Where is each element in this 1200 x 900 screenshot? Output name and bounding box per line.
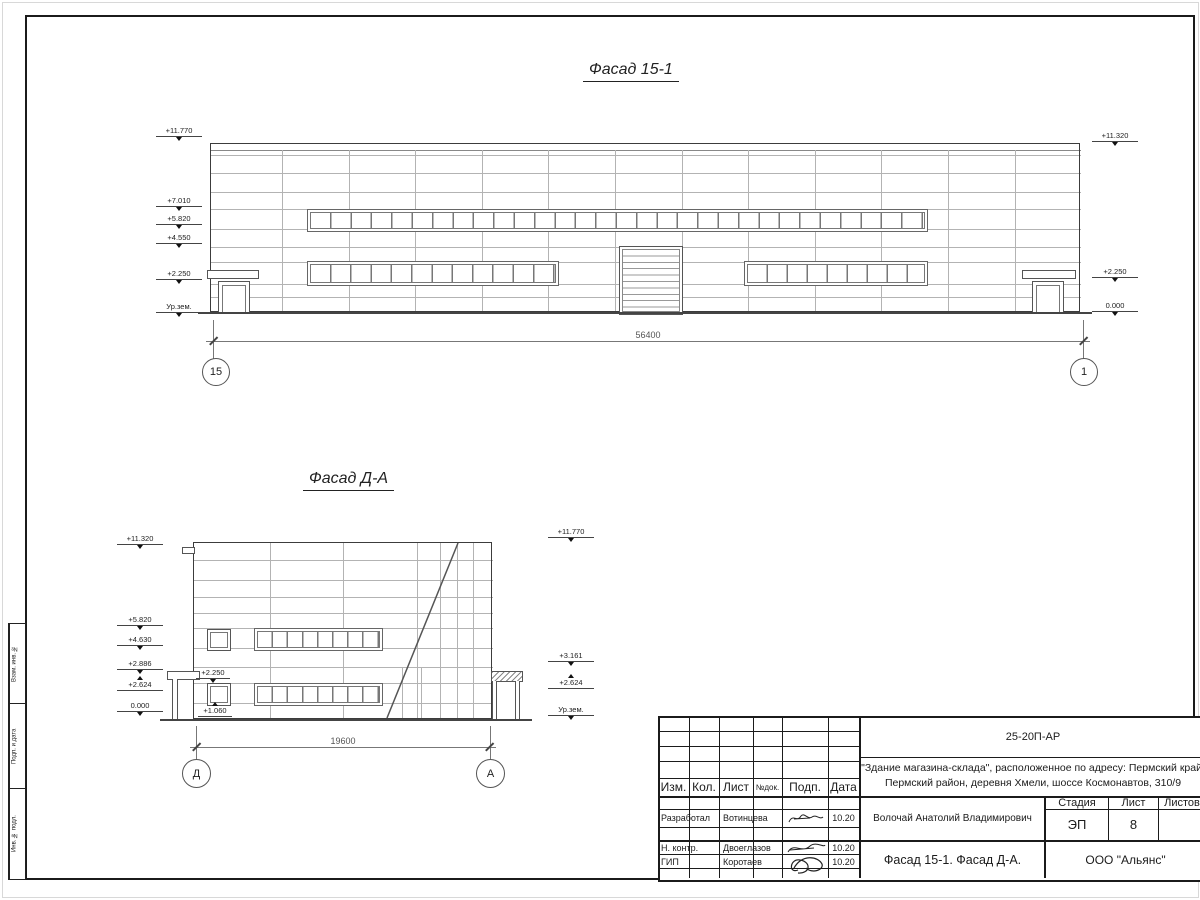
elevation-mark: +2.886 xyxy=(117,660,163,670)
tb-role-nkontr: Н. контр. xyxy=(661,841,719,854)
tb-grid xyxy=(658,746,860,747)
elevation-flag-icon xyxy=(176,137,182,141)
elevation-mark: 0.000 xyxy=(1092,302,1138,312)
elevation-mark: +2.624 xyxy=(548,679,594,689)
door-leaf xyxy=(1036,285,1060,313)
gate-slats xyxy=(622,249,680,312)
elevation-mark: +11.320 xyxy=(1092,132,1138,142)
elevation-flag-icon xyxy=(137,676,143,680)
elevation-flag-icon xyxy=(137,545,143,549)
tb-date: 10.20 xyxy=(828,841,859,854)
elevation-flag-icon xyxy=(212,702,218,706)
tb-col-data: Дата xyxy=(828,778,859,796)
signature-dvoeglazov-korotaev xyxy=(784,840,828,876)
elevation-flag-icon xyxy=(1112,278,1118,282)
tb-col-ndok: №док. xyxy=(753,778,782,796)
tb-grid xyxy=(658,827,860,828)
elevation-flag-icon xyxy=(137,670,143,674)
extension-line xyxy=(196,726,197,759)
elevation-value: +11.320 xyxy=(1102,131,1129,140)
window-frame xyxy=(210,686,228,703)
tb-col-list: Лист xyxy=(719,778,753,796)
tb-grid xyxy=(859,757,1200,758)
elevation-flag-icon xyxy=(176,244,182,248)
tb-sheet-title: Фасад 15-1. Фасад Д-А. xyxy=(861,842,1044,878)
dimension-value-f2: 19600 xyxy=(330,736,355,746)
ribbon-window-f2-upper xyxy=(254,628,383,651)
sectional-gate xyxy=(619,246,683,315)
window-panes xyxy=(310,264,556,283)
tb-grid xyxy=(658,868,860,869)
tb-name-dvoeglazov: Двоеглазов xyxy=(723,841,783,854)
axis-bubble-15: 15 xyxy=(202,358,230,386)
entrance-door-right xyxy=(1032,281,1064,314)
ribbon-window-upper xyxy=(307,209,928,232)
elevation-value: +7.010 xyxy=(167,196,190,205)
elevation-value: +3.161 xyxy=(559,651,582,660)
elevation-value: 0.000 xyxy=(1106,301,1125,310)
small-window-upper xyxy=(207,629,231,651)
ground-line-f1 xyxy=(198,312,1092,314)
elevation-value: +5.820 xyxy=(128,615,151,624)
elevation-flag-icon xyxy=(137,712,143,716)
elevation-value: +11.770 xyxy=(166,126,193,135)
axis-label: 1 xyxy=(1081,366,1087,378)
small-window-lower xyxy=(207,683,231,706)
dimension-value-f1: 56400 xyxy=(635,330,660,340)
ground-line-f2 xyxy=(160,719,532,721)
elevation-mark: +1.060 xyxy=(198,707,232,717)
elevation-value: +4.630 xyxy=(128,635,151,644)
elevation-flag-icon xyxy=(1112,142,1118,146)
elevation-flag-icon xyxy=(176,313,182,317)
tb-sheets-label: Листов xyxy=(1159,796,1200,809)
elevation-value: Ур.зем. xyxy=(558,705,583,714)
elevation-flag-icon xyxy=(568,716,574,720)
tb-stage-label: Стадия xyxy=(1046,796,1108,809)
elevation-mark: +4.550 xyxy=(156,234,202,244)
elevation-flag-icon xyxy=(176,207,182,211)
tb-project-line2: Пермский район, деревня Хмели, шоссе Кос… xyxy=(861,776,1200,791)
tb-project: "Здание магазина-склада", расположенное … xyxy=(861,759,1200,797)
window-frame xyxy=(210,632,228,648)
axis-label: Д xyxy=(193,768,200,780)
ribbon-window-lower-right xyxy=(744,261,928,286)
tb-sheet-label: Лист xyxy=(1109,796,1158,809)
elevation-value: Ур.зем. xyxy=(166,302,191,311)
elevation-mark: +2.250 xyxy=(156,270,202,280)
stamp-box-vzam: Взам. инв. № xyxy=(8,623,26,705)
entrance-canopy-right xyxy=(1022,270,1076,279)
door-leaf xyxy=(222,285,246,313)
tb-sheet-value: 8 xyxy=(1109,810,1158,838)
elevation-value: +2.250 xyxy=(201,668,224,677)
tb-date: 10.20 xyxy=(828,810,859,826)
elevation-flag-icon xyxy=(137,626,143,630)
tb-project-line1: "Здание магазина-склада", расположенное … xyxy=(861,761,1200,776)
stamp-label: Подп. и дата xyxy=(9,704,19,789)
elevation-value: +5.820 xyxy=(167,214,190,223)
elevation-mark: Ур.зем. xyxy=(156,303,202,313)
axis-bubble-a: А xyxy=(476,759,505,788)
elevation-value: 0.000 xyxy=(131,701,150,710)
elevation-mark: +2.250 xyxy=(196,669,230,679)
window-panes xyxy=(257,631,380,648)
window-panes xyxy=(257,686,380,703)
elevation-mark: +7.010 xyxy=(156,197,202,207)
tb-role-razrabotal: Разработал xyxy=(661,810,719,826)
axis-bubble-1: 1 xyxy=(1070,358,1098,386)
elevation-flag-icon xyxy=(210,679,216,683)
axis-label: А xyxy=(487,768,494,780)
dimension-line-f1 xyxy=(206,341,1090,342)
elevation-mark: +5.820 xyxy=(156,215,202,225)
window-panes xyxy=(747,264,925,283)
elevation-mark: +2.250 xyxy=(1092,268,1138,278)
elevation-value: +2.624 xyxy=(128,680,151,689)
stamp-label: Взам. инв. № xyxy=(9,624,19,704)
drawing-sheet: Взам. инв. № Подп. и дата Инв. № подл. Ф… xyxy=(0,0,1200,900)
leanto-post xyxy=(492,681,497,719)
elevation-mark: +4.630 xyxy=(117,636,163,646)
elevation-flag-icon xyxy=(176,280,182,284)
tb-name-votintseva: Вотинцева xyxy=(723,810,781,826)
ribbon-window-lower-left xyxy=(307,261,559,286)
tb-col-podp: Подп. xyxy=(782,778,828,796)
elevation-value: +11.770 xyxy=(558,527,585,536)
elevation-value: +2.886 xyxy=(128,659,151,668)
elevation-flag-icon xyxy=(568,538,574,542)
porch-column xyxy=(172,679,178,719)
elevation-value: +2.624 xyxy=(559,678,582,687)
elevation-value: +2.250 xyxy=(167,269,190,278)
elevation-flag-icon xyxy=(176,225,182,229)
elevation-mark: +11.770 xyxy=(156,127,202,137)
elevation-flag-icon xyxy=(1112,312,1118,316)
signature-votintseva xyxy=(786,811,826,826)
elevation-value: +2.250 xyxy=(1103,267,1126,276)
elevation-mark: Ур.зем. xyxy=(548,706,594,716)
leanto-post xyxy=(515,681,520,719)
elevation-mark: +11.770 xyxy=(548,528,594,538)
elevation-mark: +3.161 xyxy=(548,652,594,662)
entrance-door-left xyxy=(218,281,250,314)
stamp-box-inv: Инв. № подл. xyxy=(8,788,26,880)
axis-label: 15 xyxy=(210,366,222,378)
dimension-line-f2 xyxy=(190,747,496,748)
tb-grid xyxy=(658,761,860,762)
elevation-value: +1.060 xyxy=(203,706,226,715)
elevation-mark: 0.000 xyxy=(117,702,163,712)
elevation-value: +4.550 xyxy=(167,233,190,242)
axis-bubble-d: Д xyxy=(182,759,211,788)
elevation-mark: +2.624 xyxy=(117,681,163,691)
tb-date: 10.20 xyxy=(828,855,859,868)
elevation-flag-icon xyxy=(137,646,143,650)
tb-name-korotaev: Коротаев xyxy=(723,855,781,868)
tb-stage-value: ЭП xyxy=(1046,810,1108,838)
roof-flag xyxy=(182,547,195,554)
tb-col-izm: Изм. xyxy=(658,778,689,796)
elevation-flag-icon xyxy=(568,674,574,678)
stamp-box-podp: Подп. и дата xyxy=(8,703,26,790)
tb-role-gip: ГИП xyxy=(661,855,719,868)
stamp-label: Инв. № подл. xyxy=(9,789,19,879)
tb-chief-name: Волочай Анатолий Владимирович xyxy=(861,796,1044,840)
facade1-title: Фасад 15-1 xyxy=(583,61,679,82)
tb-col-kol: Кол. xyxy=(689,778,719,796)
window-panes xyxy=(310,212,925,229)
elevation-value: +11.320 xyxy=(127,534,154,543)
entrance-canopy-left xyxy=(207,270,259,279)
elevation-mark: +11.320 xyxy=(117,535,163,545)
facade2-title: Фасад Д-А xyxy=(303,470,394,491)
tb-doc-number: 25-20П-АР xyxy=(861,716,1200,757)
elevation-flag-icon xyxy=(568,662,574,666)
ribbon-window-f2-lower xyxy=(254,683,383,706)
tb-company: ООО "Альянс" xyxy=(1046,842,1200,878)
tb-grid xyxy=(658,731,860,732)
elevation-mark: +5.820 xyxy=(117,616,163,626)
